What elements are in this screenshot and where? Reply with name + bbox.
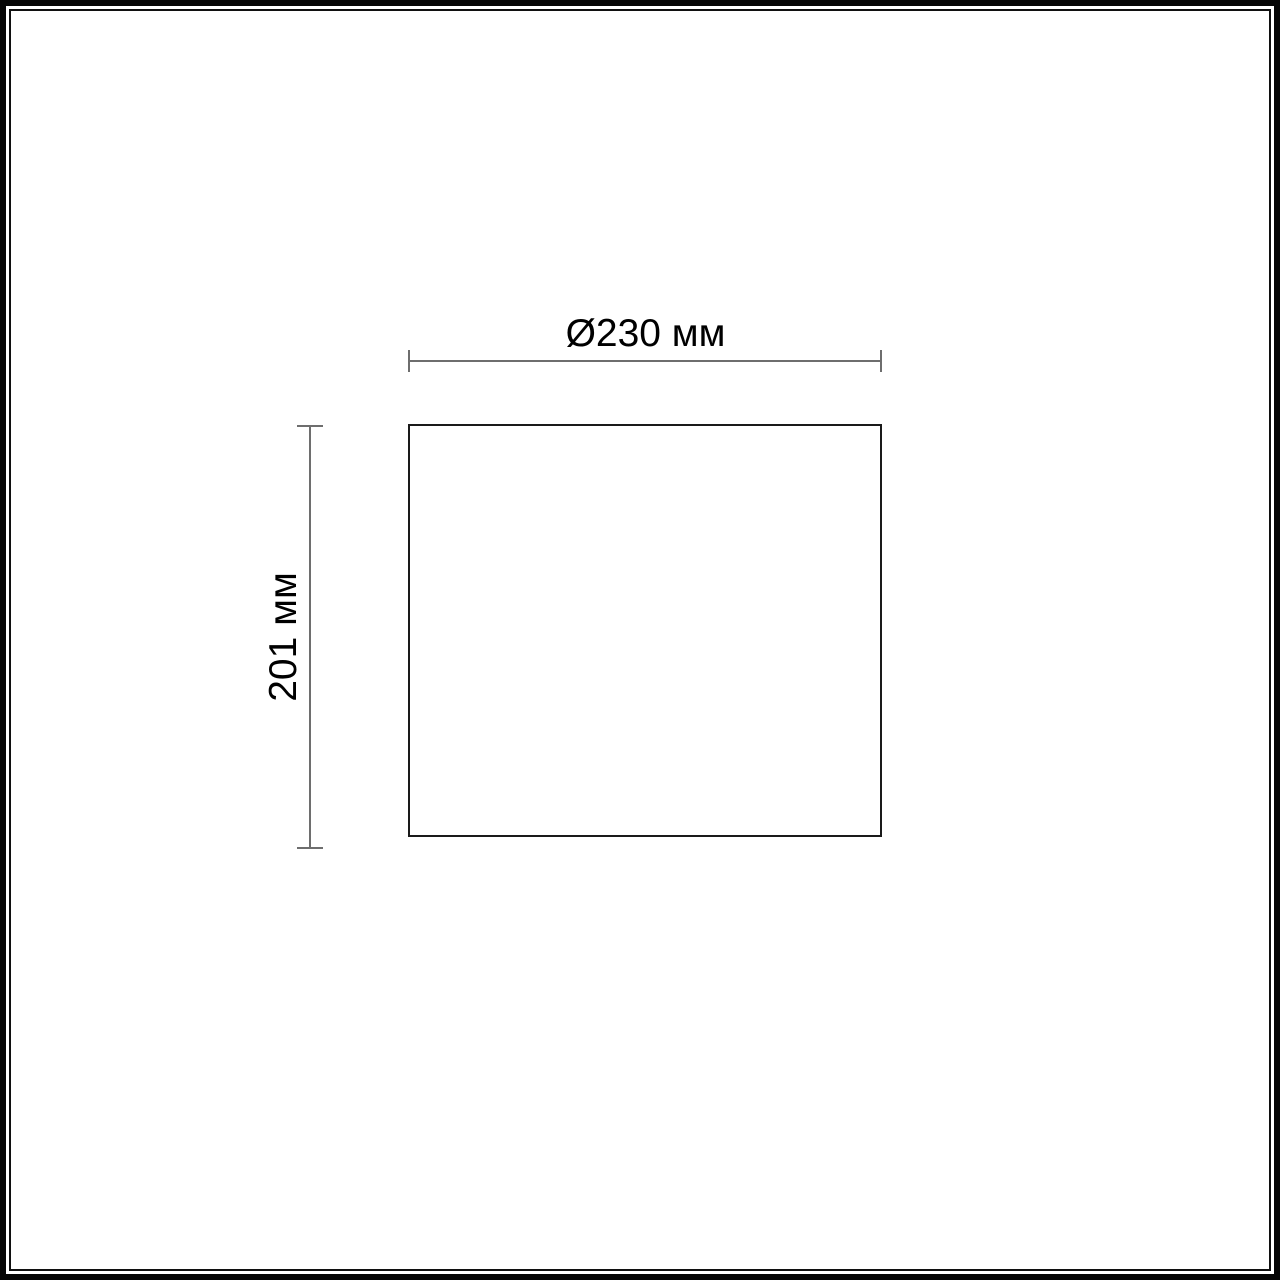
height-dimension-tick-bottom <box>297 847 323 849</box>
product-outline-rect <box>408 424 882 837</box>
width-dimension-tick-left <box>408 350 410 372</box>
width-dimension-label: Ø230 мм <box>409 312 882 356</box>
width-dimension-line <box>409 360 882 362</box>
width-dimension-tick-right <box>880 350 882 372</box>
height-dimension-line <box>309 426 311 848</box>
height-dimension-label: 201 мм <box>262 572 306 702</box>
height-dimension-tick-top <box>297 425 323 427</box>
drawing-canvas: Ø230 мм 201 мм <box>0 0 1280 1280</box>
